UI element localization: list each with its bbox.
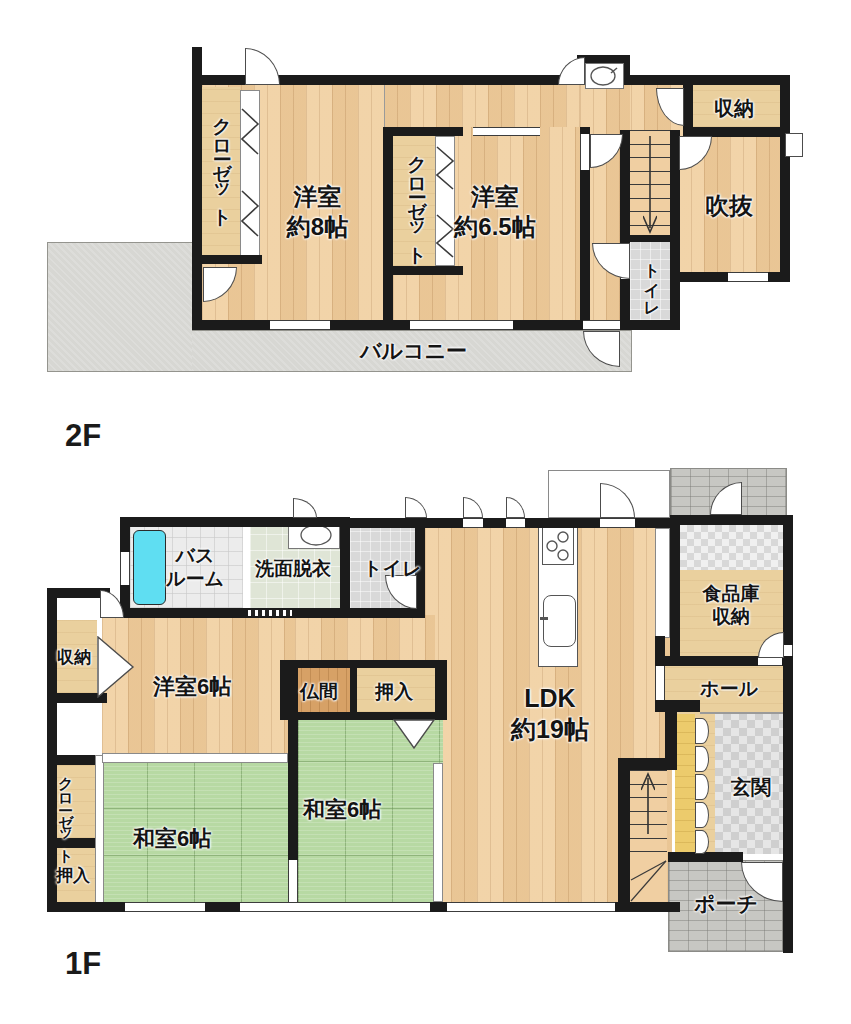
room-label-porch: ポーチ bbox=[694, 890, 758, 918]
wall bbox=[668, 852, 743, 862]
corridor-floor bbox=[295, 615, 435, 662]
door-arc bbox=[293, 498, 317, 518]
stair-down-arrow-icon bbox=[643, 136, 657, 234]
oshiire-door-triangle bbox=[393, 719, 435, 749]
wall bbox=[670, 515, 680, 665]
door-arc bbox=[245, 48, 280, 85]
room-label-washitsu-left: 和室6帖 bbox=[133, 824, 211, 854]
room-label-line: ルーム bbox=[160, 568, 230, 591]
window bbox=[728, 272, 768, 282]
door-arc bbox=[463, 497, 483, 518]
wall bbox=[780, 75, 790, 282]
sink-icon bbox=[586, 64, 623, 88]
cabinet-door-arc bbox=[695, 830, 709, 854]
wall bbox=[383, 266, 463, 275]
balcony-label: バルコニー bbox=[360, 337, 467, 365]
kitchen-sink bbox=[543, 595, 576, 647]
wall bbox=[783, 515, 793, 953]
washbasin bbox=[585, 63, 624, 89]
wall bbox=[245, 517, 350, 527]
room-label-toilet-1f: トイレ bbox=[363, 556, 421, 582]
room-label-pantry: 食品庫 収納 bbox=[685, 583, 777, 629]
cabinet-door-arc bbox=[695, 774, 709, 800]
wall bbox=[120, 517, 250, 527]
room-label-bath: バス ルーム bbox=[160, 545, 230, 591]
wall bbox=[192, 75, 202, 330]
wall bbox=[340, 517, 350, 615]
wall bbox=[288, 662, 298, 860]
room-label-hall: ホール bbox=[700, 676, 758, 702]
wall bbox=[630, 75, 790, 85]
wall bbox=[620, 235, 670, 242]
floorplan-canvas: クローゼット 洋室 約8帖 クローゼット 洋室 約6.5帖 収納 吹抜 トイレ … bbox=[0, 0, 851, 1024]
room-label-oshiire-top: 押入 bbox=[375, 679, 413, 705]
room-label-washroom: 洗面脱衣 bbox=[255, 556, 331, 582]
door-arc bbox=[558, 57, 585, 85]
room-label-storage-2f: 収納 bbox=[714, 95, 754, 122]
sliding-door-marker bbox=[248, 610, 292, 616]
wall bbox=[618, 758, 630, 912]
stove bbox=[542, 527, 574, 565]
room-label-toilet-2f: トイレ bbox=[641, 252, 662, 316]
window bbox=[120, 552, 130, 585]
wall bbox=[435, 660, 447, 720]
door-opening bbox=[580, 134, 590, 170]
door-opening bbox=[463, 518, 483, 528]
window bbox=[270, 320, 330, 330]
cabinet-door-arc bbox=[695, 746, 709, 772]
room-label-washitsu-right: 和室6帖 bbox=[303, 795, 381, 825]
window bbox=[125, 902, 205, 912]
room-label-closet-left: クローゼット bbox=[209, 104, 235, 259]
room-label-line: 収納 bbox=[685, 606, 777, 629]
door-opening bbox=[583, 320, 620, 330]
wall bbox=[670, 515, 793, 525]
wall bbox=[280, 660, 447, 668]
wall bbox=[665, 705, 677, 760]
room-label-butsuma: 仏間 bbox=[300, 679, 338, 705]
room-label-line: 約6.5帖 bbox=[420, 212, 570, 242]
window bbox=[240, 902, 430, 912]
cabinet-door-arc bbox=[695, 718, 709, 744]
room-label-closet-1f: クローゼット bbox=[56, 766, 75, 836]
wall bbox=[383, 127, 463, 136]
room-label-bedroom6: 洋室6帖 bbox=[153, 672, 231, 702]
pantry-shelf-tile bbox=[680, 525, 783, 570]
room-label-oshiire-left: 押入 bbox=[56, 864, 90, 887]
closet-door bbox=[95, 755, 104, 903]
stair-up-arrow-icon bbox=[641, 772, 655, 836]
room-label-line: 洋室 bbox=[420, 182, 570, 212]
storage-door-triangle bbox=[97, 636, 135, 698]
balcony-floor bbox=[47, 242, 193, 372]
room-label-line: LDK bbox=[495, 683, 605, 714]
wall bbox=[620, 130, 630, 330]
window bbox=[473, 127, 540, 136]
room-label-line: 食品庫 bbox=[685, 583, 777, 606]
door-arc bbox=[405, 497, 427, 518]
wall bbox=[47, 755, 102, 765]
cabinet-door-arc bbox=[695, 802, 709, 828]
wall bbox=[655, 636, 665, 666]
shoe-cabinet bbox=[675, 714, 695, 854]
room-label-storage-1f: 収納 bbox=[57, 646, 91, 669]
window bbox=[447, 902, 615, 912]
room-label-line: 約8帖 bbox=[250, 212, 385, 242]
door-opening bbox=[600, 518, 635, 528]
room-label-void: 吹抜 bbox=[705, 190, 753, 222]
sliding-door bbox=[288, 860, 298, 902]
floor-label-2f: 2F bbox=[65, 418, 101, 454]
room-label-line: バス bbox=[160, 545, 230, 568]
floor-label-1f: 1F bbox=[65, 946, 101, 982]
stove-icon bbox=[543, 528, 573, 564]
room-label-bedroom65: 洋室 約6.5帖 bbox=[420, 182, 570, 242]
refrigerator-space bbox=[655, 528, 670, 638]
room-label-genkan: 玄関 bbox=[731, 774, 771, 801]
step-line bbox=[700, 712, 783, 714]
room-label-line: 約19帖 bbox=[495, 714, 605, 745]
room-label-bedroom8: 洋室 約8帖 bbox=[250, 182, 385, 242]
window bbox=[410, 320, 513, 330]
wall bbox=[350, 668, 357, 712]
faucet-icon bbox=[540, 617, 548, 620]
door-arc bbox=[506, 497, 525, 518]
room-label-line: 洋室 bbox=[250, 182, 385, 212]
sliding-door bbox=[102, 753, 288, 763]
wall bbox=[655, 700, 700, 712]
window bbox=[785, 133, 803, 157]
room-label-ldk: LDK 約19帖 bbox=[495, 683, 605, 746]
stair-winder-lines bbox=[630, 860, 667, 902]
sliding-door bbox=[433, 763, 443, 902]
door-opening bbox=[506, 518, 525, 528]
opening-line bbox=[384, 85, 385, 127]
